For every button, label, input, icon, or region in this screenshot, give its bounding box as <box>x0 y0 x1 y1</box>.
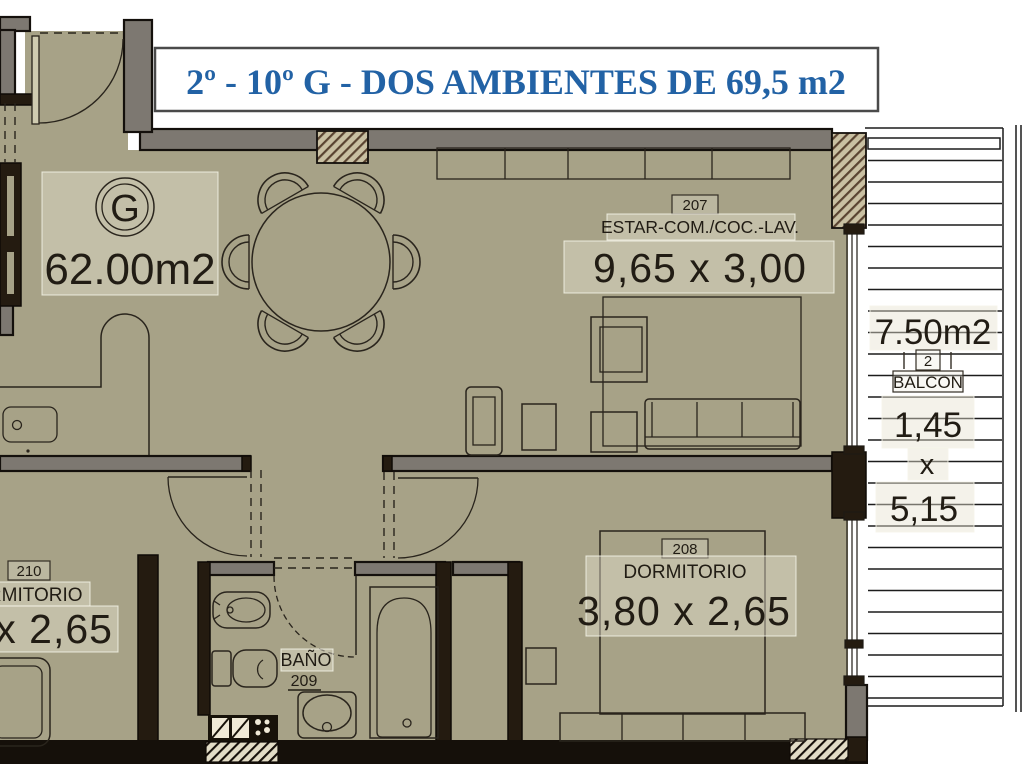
floor-plan-page: G 62.00m2 207 ESTAR-COM./COC.-LAV. 9,65 … <box>0 0 1024 768</box>
wall-middle-right <box>383 456 832 471</box>
balcony-glazing <box>844 224 864 685</box>
bedroom208-dims: 3,80 x 2,65 <box>577 588 791 634</box>
kitchen-dot <box>26 449 29 452</box>
wall-cap-middle-right <box>383 456 392 471</box>
wall-bath-top-left <box>208 562 274 575</box>
hatch-bottom-left <box>206 742 278 762</box>
wall-corner-bottom-right <box>846 737 867 762</box>
room-number-207: 207 <box>682 197 707 214</box>
wall-bedroom208-left <box>508 562 522 747</box>
unit-area: 62.00m2 <box>44 245 215 294</box>
entry-vestibule-floor <box>25 31 128 153</box>
wall-top <box>140 129 832 150</box>
balcony-name: BALCON <box>893 373 963 392</box>
column-top-center <box>317 131 368 163</box>
living-dims: 9,65 x 3,00 <box>593 245 807 291</box>
wall-middle-left <box>0 456 250 471</box>
duct-notch-1 <box>7 176 14 236</box>
wall-bedroom210-right <box>138 555 158 747</box>
wall-right-junction <box>832 452 866 518</box>
bedroom210-name: DORMITORIO <box>0 585 83 606</box>
wall-cap-middle-left <box>242 456 251 471</box>
title-text: 2º - 10º G - DOS AMBIENTES DE 69,5 m2 <box>186 62 846 102</box>
vent-box <box>208 715 278 741</box>
bathroom-number: 209 <box>291 673 318 690</box>
balcony-width: 1,45 <box>894 406 962 445</box>
balcony-railing <box>868 138 1000 149</box>
hatch-bottom-right <box>790 739 848 760</box>
unit-label: G 62.00m2 <box>42 172 218 295</box>
glazing-sill-2 <box>844 446 864 454</box>
glazing-sill-1 <box>844 224 864 234</box>
unit-letter: G <box>110 188 140 230</box>
balcony-number: 2 <box>924 353 932 370</box>
wall-bath-left <box>198 562 210 715</box>
room-number-210: 210 <box>16 563 41 580</box>
balcony-area: 7.50m2 <box>875 313 992 352</box>
living-name: ESTAR-COM./COC.-LAV. <box>601 217 799 237</box>
room-number-208: 208 <box>672 541 697 558</box>
bedroom208-name: DORMITORIO <box>623 562 746 583</box>
wall-right-lower <box>846 685 867 740</box>
glazing-sill-4 <box>844 676 864 685</box>
column-top-right <box>832 133 866 228</box>
glazing-sill-3 <box>844 512 864 520</box>
duct-notch-2 <box>7 252 14 294</box>
balcony-sep: x <box>920 449 935 481</box>
bathroom-name: BAÑO <box>280 649 331 670</box>
bedroom210-dims: 3,80 x 2,65 <box>0 606 113 652</box>
wall-left-upper <box>0 30 15 102</box>
balcony-length: 5,15 <box>890 490 958 529</box>
glazing-junction <box>845 640 863 648</box>
left-closet-floor <box>0 103 28 153</box>
wall-bath-top-right <box>355 562 445 575</box>
plan-title: 2º - 10º G - DOS AMBIENTES DE 69,5 m2 <box>155 48 878 111</box>
wall-vestibule-right <box>124 20 152 132</box>
wall-bottom <box>0 740 868 764</box>
floor-plan: G 62.00m2 207 ESTAR-COM./COC.-LAV. 9,65 … <box>0 0 1024 768</box>
